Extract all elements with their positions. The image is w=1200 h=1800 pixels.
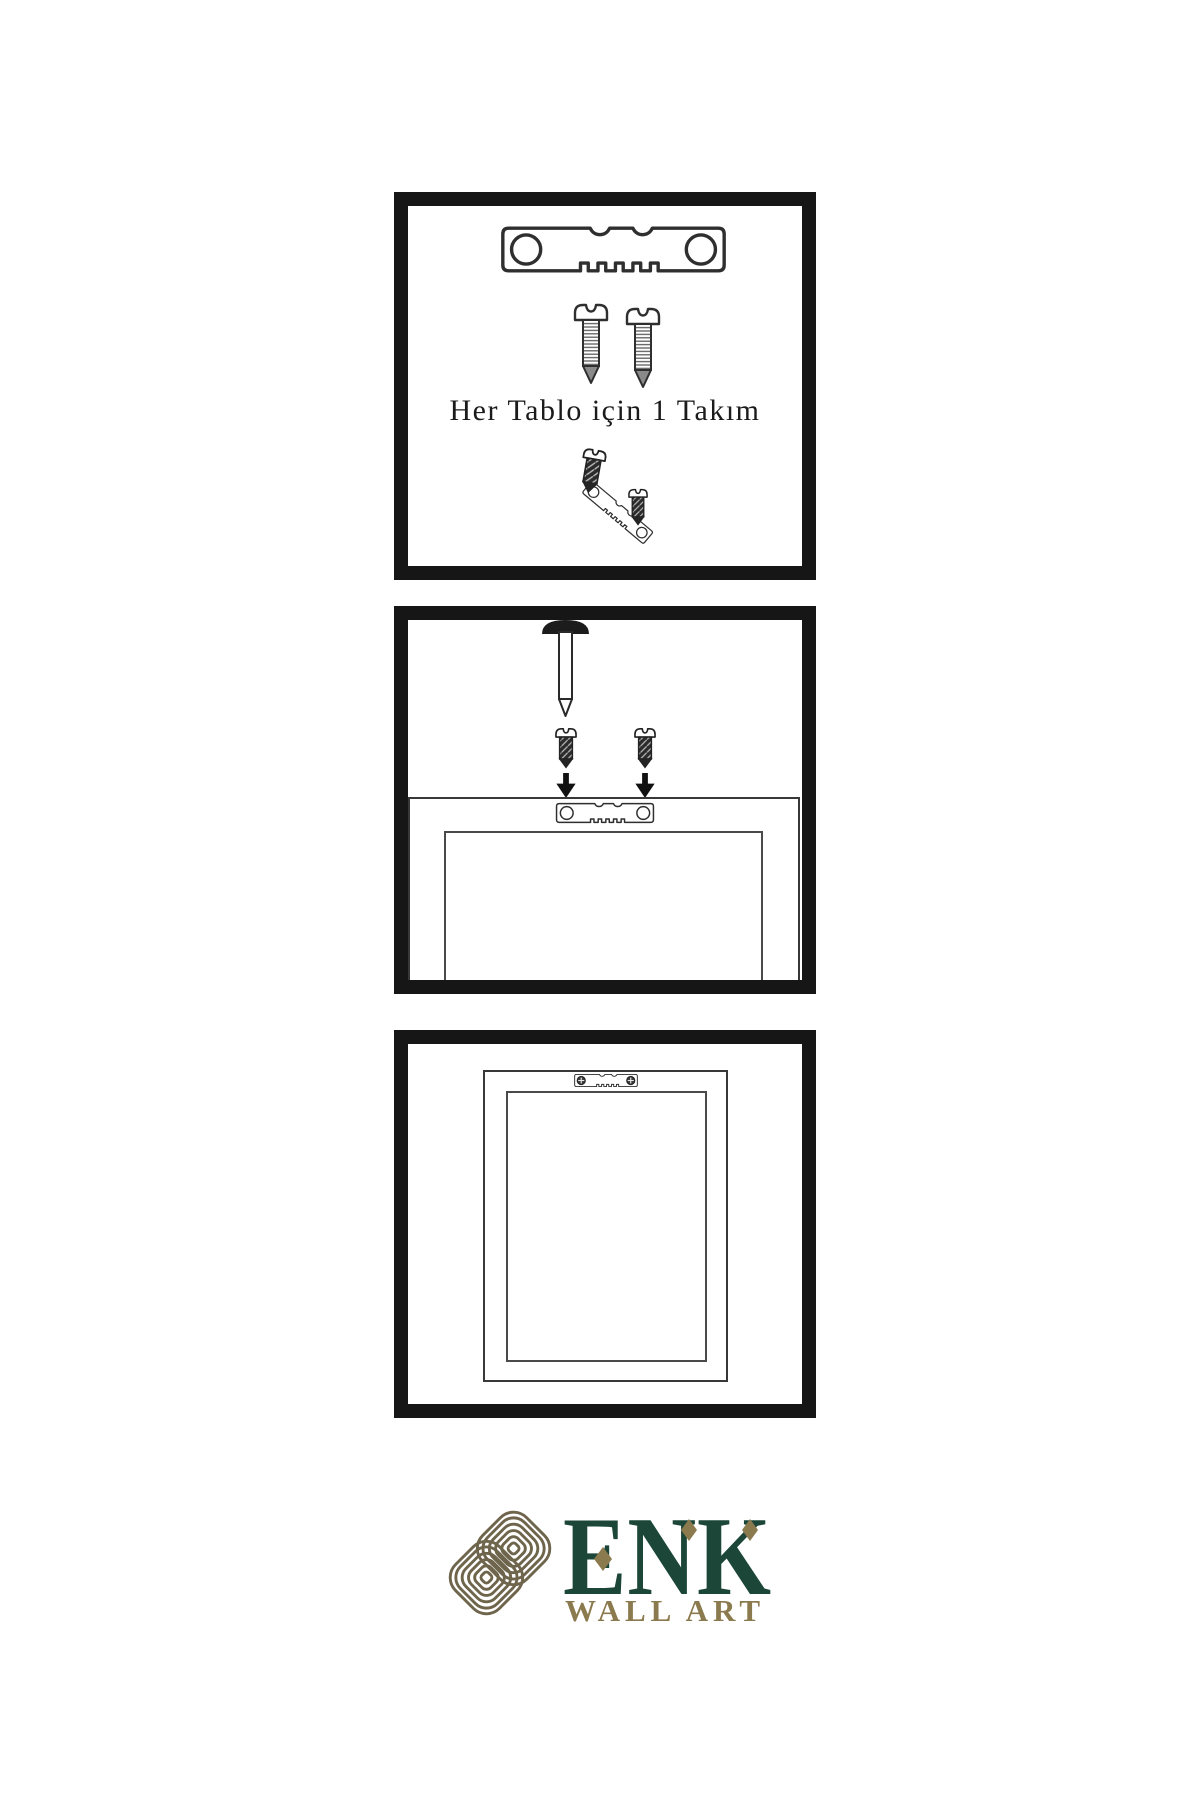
arrow-down-icon <box>555 773 577 798</box>
screw-icon <box>625 306 661 392</box>
sawtooth-hanger-icon <box>497 222 730 277</box>
panel-wall-mounting <box>394 606 816 994</box>
sawtooth-hanger-icon <box>554 800 656 826</box>
sawtooth-hanger-installed-icon <box>573 1072 639 1089</box>
enk-knot-icon <box>437 1503 563 1623</box>
frame-back-inner <box>506 1091 707 1362</box>
dark-screw-icon <box>555 727 577 769</box>
nail-icon <box>541 619 590 719</box>
screw-into-hanger-icon <box>572 448 666 556</box>
dark-screw-icon <box>634 727 656 769</box>
product-instruction-sheet: Her Tablo için 1 Takım <box>0 0 1200 1800</box>
frame-back-inner <box>444 831 763 994</box>
panel-mounted-frame-back <box>394 1030 816 1418</box>
panel-hardware-kit: Her Tablo için 1 Takım <box>394 192 816 580</box>
screw-icon <box>573 302 609 388</box>
kit-caption: Her Tablo için 1 Takım <box>408 394 802 428</box>
brand-subtitle: WALL ART <box>565 1593 765 1629</box>
arrow-down-icon <box>634 773 656 798</box>
